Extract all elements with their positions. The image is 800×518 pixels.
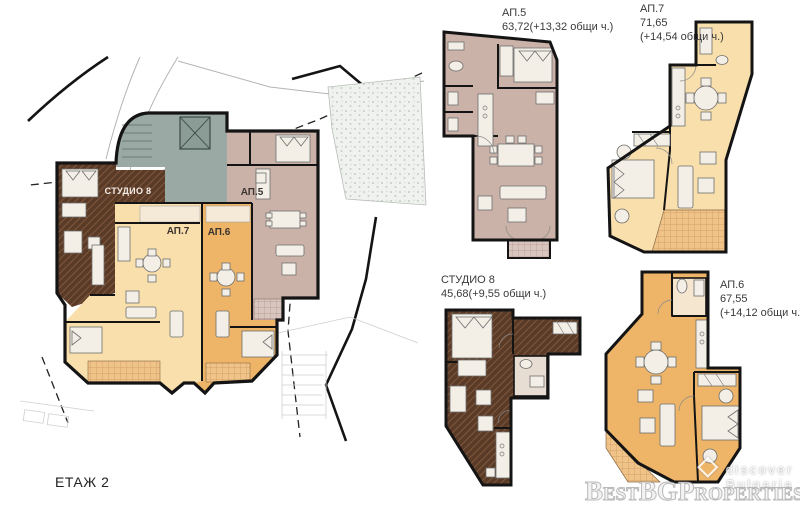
studio8-name: СТУДИО 8 [441,273,546,287]
ap5-area: 63,72(+13,32 общи ч.) [502,20,613,34]
floor-plan-sheet: СТУДИО 8 АП.5 АП.7 АП.6 [0,0,800,518]
ap7-area2: (+14,54 общи ч.) [640,30,724,44]
ap6-area2: (+14,12 общи ч.) [720,306,800,320]
ap7-area1: 71,65 [640,16,724,30]
ap7-label: АП.7 71,65 (+14,54 общи ч.) [640,2,724,44]
studio8-label: СТУДИО 8 45,68(+9,55 общи ч.) [441,273,546,301]
building [57,113,318,393]
ap6-label: АП.6 67,55 (+14,12 общи ч.) [720,278,800,320]
ap6-area1: 67,55 [720,292,800,306]
ap6-name: АП.6 [720,278,800,292]
ap7-detail-plan [604,20,756,265]
floor-label: ЕТАЖ 2 [55,474,109,490]
main-plan-ap6-label: АП.6 [208,227,231,238]
main-plan-ap5-label: АП.5 [241,187,264,198]
main-floor-plan [20,55,440,465]
ap7-name: АП.7 [640,2,724,16]
watermark-brand: BestBGProperties [585,476,800,507]
watermark-logo-icon [697,457,718,478]
ap5-name: АП.5 [502,6,613,20]
ap5-detail-plan [440,28,568,270]
main-plan-ap7-label: АП.7 [167,226,190,237]
main-plan-studio8-label: СТУДИО 8 [105,186,152,196]
studio8-detail-plan [438,298,590,498]
studio8-area: 45,68(+9,55 общи ч.) [441,287,546,301]
ap5-label: АП.5 63,72(+13,32 общи ч.) [502,6,613,34]
